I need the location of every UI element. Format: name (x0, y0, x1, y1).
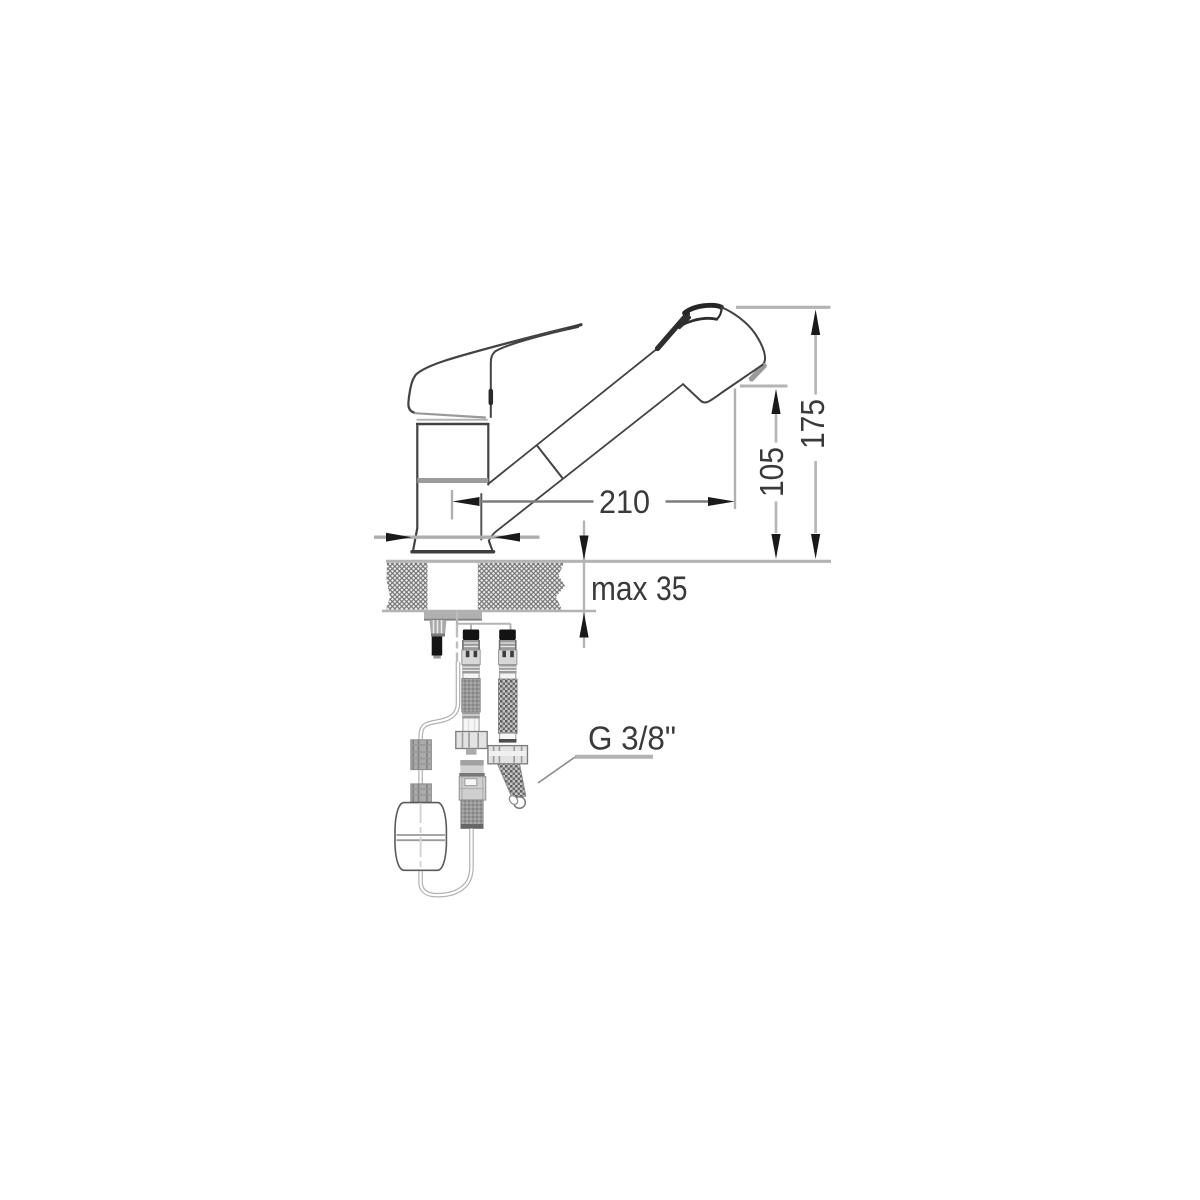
svg-text:max: max (591, 570, 648, 608)
svg-text:35: 35 (656, 570, 688, 608)
svg-text:210: 210 (599, 484, 650, 520)
svg-text:105: 105 (753, 447, 790, 497)
svg-text:G 3/8": G 3/8" (588, 720, 676, 757)
svg-text:175: 175 (794, 399, 831, 449)
